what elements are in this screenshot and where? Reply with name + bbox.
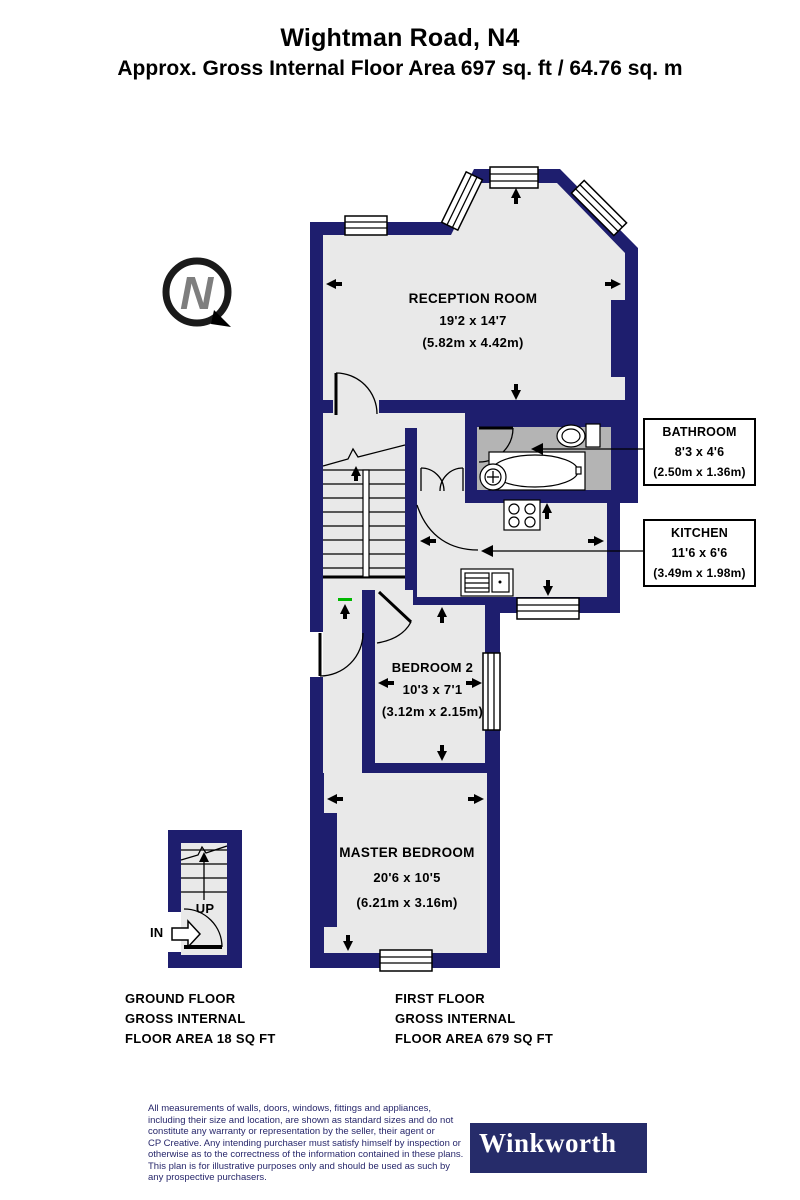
toilet-icon <box>557 424 600 447</box>
summary-line: FIRST FLOOR <box>395 989 553 1009</box>
hob-icon <box>504 500 540 530</box>
disclaimer: All measurements of walls, doors, window… <box>148 1103 463 1184</box>
disclaimer-line: This plan is for illustrative purposes o… <box>148 1161 463 1173</box>
callout-bathroom: BATHROOM 8'3 x 4'6 (2.50m x 1.36m) <box>643 418 756 486</box>
room-name: RECEPTION ROOM <box>353 288 593 310</box>
kitchen-sink-icon <box>461 569 513 596</box>
kitchen-window <box>517 598 579 619</box>
summary-line: GROSS INTERNAL <box>395 1009 553 1029</box>
summary-ground-floor: GROUND FLOOR GROSS INTERNAL FLOOR AREA 1… <box>125 989 276 1049</box>
room-dims-m: (5.82m x 4.42m) <box>353 332 593 354</box>
disclaimer-line: any prospective purchasers. <box>148 1172 463 1184</box>
disclaimer-line: CP Creative. Any intending purchaser mus… <box>148 1138 463 1150</box>
room-dims-ft: 8'3 x 4'6 <box>645 442 754 462</box>
room-dims-m: (2.50m x 1.36m) <box>645 462 754 482</box>
summary-line: FLOOR AREA 679 SQ FT <box>395 1029 553 1049</box>
compass-letter: N <box>180 267 214 319</box>
page-subtitle: Approx. Gross Internal Floor Area 697 sq… <box>0 57 800 81</box>
room-dims-ft: 11'6 x 6'6 <box>645 543 754 563</box>
master-window <box>380 950 432 971</box>
room-label-reception: RECEPTION ROOM 19'2 x 14'7 (5.82m x 4.42… <box>353 288 593 354</box>
room-name: KITCHEN <box>645 523 754 543</box>
kitchen-door-gap <box>417 490 465 503</box>
summary-first-floor: FIRST FLOOR GROSS INTERNAL FLOOR AREA 67… <box>395 989 553 1049</box>
disclaimer-line: otherwise as to the correctness of the i… <box>148 1149 463 1161</box>
room-name: MASTER BEDROOM <box>307 840 507 865</box>
room-name: BEDROOM 2 <box>350 657 515 679</box>
summary-line: GROUND FLOOR <box>125 989 276 1009</box>
room-label-bedroom2: BEDROOM 2 10'3 x 7'1 (3.12m x 2.15m) <box>350 657 515 723</box>
room-dims-m: (6.21m x 3.16m) <box>307 890 507 915</box>
reception-window <box>345 216 387 235</box>
disclaimer-line: All measurements of walls, doors, window… <box>148 1103 463 1115</box>
room-dims-ft: 19'2 x 14'7 <box>353 310 593 332</box>
compass-icon: N <box>166 261 231 327</box>
room-name: BATHROOM <box>645 422 754 442</box>
bay-window-top <box>490 167 538 188</box>
page-title: Wightman Road, N4 <box>0 24 800 53</box>
reception-wall-notch <box>611 300 625 377</box>
room-dims-m: (3.12m x 2.15m) <box>350 701 515 723</box>
summary-line: GROSS INTERNAL <box>125 1009 276 1029</box>
summary-line: FLOOR AREA 18 SQ FT <box>125 1029 276 1049</box>
room-dims-ft: 10'3 x 7'1 <box>350 679 515 701</box>
room-dims-m: (3.49m x 1.98m) <box>645 563 754 583</box>
label-in: IN <box>150 925 172 940</box>
reception-door-gap <box>333 400 379 413</box>
label-up: UP <box>188 901 222 916</box>
disclaimer-line: including their size and location, are s… <box>148 1115 463 1127</box>
green-tick <box>338 598 352 601</box>
basin-icon <box>480 464 506 490</box>
disclaimer-line: constitute any warranty or representatio… <box>148 1126 463 1138</box>
room-dims-ft: 20'6 x 10'5 <box>307 865 507 890</box>
callout-kitchen: KITCHEN 11'6 x 6'6 (3.49m x 1.98m) <box>643 519 756 587</box>
winkworth-logo: Winkworth <box>470 1123 647 1173</box>
brand-name: Winkworth <box>470 1123 647 1159</box>
room-label-master: MASTER BEDROOM 20'6 x 10'5 (6.21m x 3.16… <box>307 840 507 915</box>
ground-floor-plan <box>168 830 242 968</box>
